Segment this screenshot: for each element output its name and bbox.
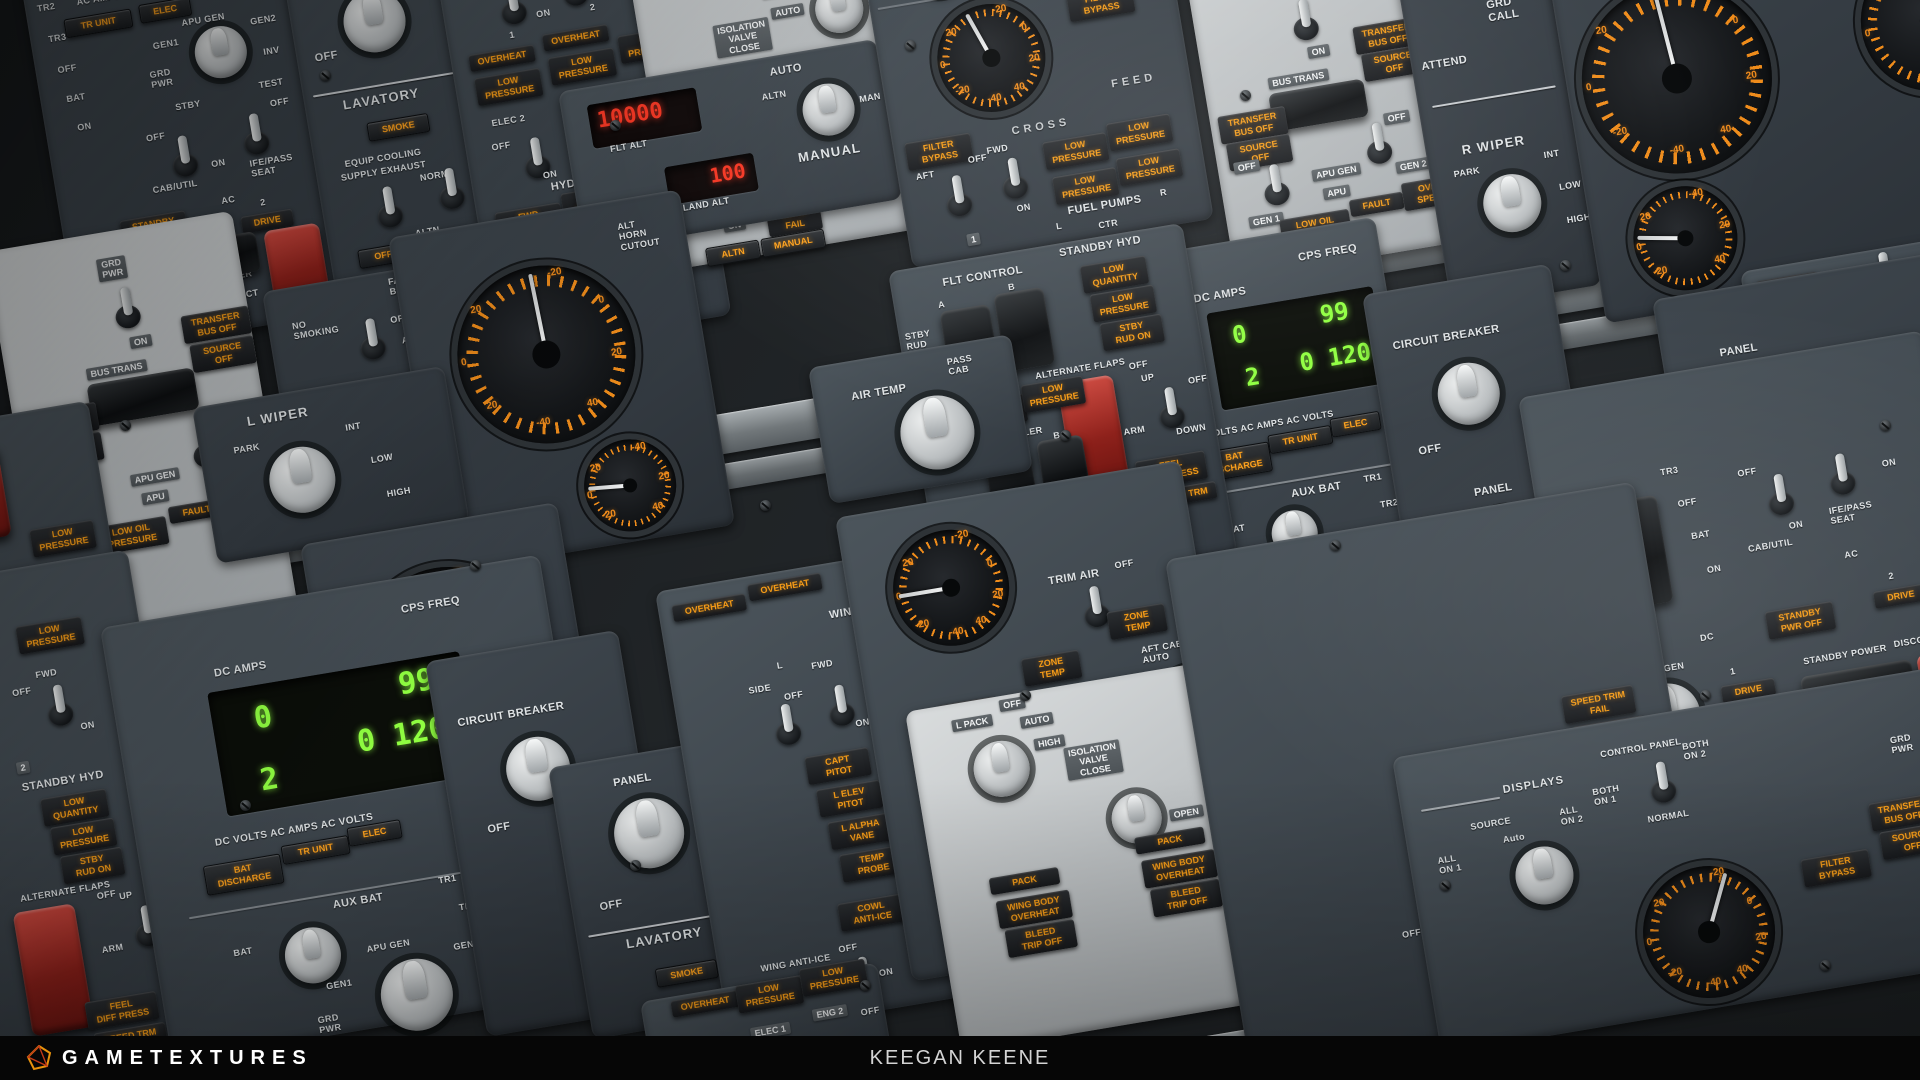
normal-label: NORMAL bbox=[1647, 808, 1690, 825]
ac-section-label: AC bbox=[1844, 548, 1859, 560]
fuel-low-pressure-annunciator: LOW PRESSURE bbox=[1042, 132, 1110, 170]
meter-selector-knob[interactable] bbox=[191, 22, 251, 82]
transfer-bus-off-annunciator: TRANSFER BUS OFF bbox=[1868, 793, 1920, 831]
fuel-low-pressure-annunciator: LOW PRESSURE bbox=[1116, 148, 1184, 186]
tr3-label: TR3 bbox=[1659, 465, 1679, 478]
screw-icon bbox=[1060, 430, 1071, 441]
panel-label: PANEL bbox=[1719, 341, 1759, 360]
auto-tag: AUTO bbox=[1019, 712, 1054, 730]
fuel-low-pressure-annunciator: LOW PRESSURE bbox=[29, 520, 97, 558]
all-on-2-label: ALL ON 2 bbox=[1558, 803, 1584, 827]
off-label: OFF bbox=[314, 49, 339, 65]
on-label: ON bbox=[878, 966, 894, 979]
supply-toggle[interactable] bbox=[371, 182, 408, 232]
l-wiper-title: L WIPER bbox=[246, 405, 310, 430]
grd-pwr-tag: GRD PWR bbox=[96, 255, 128, 282]
divider bbox=[1432, 85, 1556, 108]
fwd-label: FWD bbox=[986, 142, 1009, 156]
engine-1-label: 1 bbox=[509, 29, 516, 40]
no-smoking-label: NO SMOKING bbox=[291, 314, 340, 342]
bat-label: BAT bbox=[1690, 528, 1710, 541]
fuel-pump-toggle[interactable] bbox=[996, 154, 1033, 204]
on-label: ON bbox=[542, 168, 558, 181]
auto-value: Auto bbox=[1502, 831, 1525, 845]
on-label: ON bbox=[1881, 457, 1897, 470]
all-on-1-label: ALL ON 1 bbox=[1437, 852, 1463, 876]
aux-bat-knob[interactable] bbox=[281, 923, 345, 987]
cab-util-toggle[interactable] bbox=[1762, 470, 1799, 520]
pack-annunciator: PACK bbox=[989, 867, 1061, 895]
isolation-valve-tag: ISOLATION VALVE CLOSE bbox=[712, 17, 773, 59]
cab-util-label: CAB/UTIL bbox=[1747, 537, 1793, 555]
fwd-label: FWD bbox=[35, 667, 58, 681]
cps-freq-label: CPS FREQ bbox=[1297, 242, 1358, 264]
screw-icon bbox=[610, 120, 621, 131]
on-label: ON bbox=[1788, 519, 1804, 532]
off-label: OFF bbox=[1187, 373, 1208, 386]
right-tank-label: R bbox=[1159, 187, 1168, 198]
apu-tag: APU bbox=[141, 489, 170, 506]
fwd-label: FWD bbox=[811, 658, 834, 672]
screw-icon bbox=[320, 70, 331, 81]
tr-unit-button[interactable]: TR UNIT bbox=[63, 8, 133, 38]
low-label: LOW bbox=[1558, 179, 1582, 193]
elec-button[interactable]: ELEC bbox=[1329, 411, 1381, 438]
filter-bypass-annunciator: FILTER BYPASS bbox=[904, 133, 974, 171]
cab-util-label: CAB/UTIL bbox=[152, 178, 198, 196]
off-label: OFF bbox=[269, 96, 290, 109]
footer-bar: GAMETEXTURES KEEGAN KEENE bbox=[0, 1036, 1920, 1080]
off-label: OFF bbox=[487, 820, 512, 836]
anti-ice-toggle-1[interactable] bbox=[495, 0, 532, 29]
on-tag: ON bbox=[129, 334, 152, 350]
screw-icon bbox=[1020, 690, 1031, 701]
attend-label: ATTEND bbox=[1421, 54, 1469, 74]
tr3-label: TR3 bbox=[48, 31, 68, 44]
screw-icon bbox=[240, 800, 251, 811]
panel-light-knob[interactable] bbox=[609, 793, 690, 874]
man-label: MAN bbox=[859, 91, 882, 105]
screw-icon bbox=[860, 980, 871, 991]
tr1-label: TR1 bbox=[438, 873, 458, 886]
smoke-button[interactable]: SMOKE bbox=[655, 959, 719, 988]
window-heat-toggle[interactable] bbox=[823, 681, 860, 731]
gen1-label: GEN1 bbox=[325, 977, 352, 992]
on-label: ON bbox=[80, 719, 96, 732]
window-heat-toggle[interactable] bbox=[769, 700, 806, 750]
altn-button[interactable]: ALTN bbox=[705, 239, 761, 266]
left-tank-label: L bbox=[1055, 221, 1063, 232]
number-2-label: 2 bbox=[259, 197, 266, 208]
inv-label: INV bbox=[263, 44, 281, 57]
alternate-flaps-guarded-switch[interactable] bbox=[13, 903, 95, 1037]
smoke-button[interactable]: SMOKE bbox=[366, 113, 430, 142]
off-label: OFF bbox=[1737, 466, 1758, 479]
tank-2-tag: 2 bbox=[16, 761, 31, 775]
meter-selector-knob[interactable] bbox=[375, 953, 458, 1036]
fuel-pump-toggle[interactable] bbox=[940, 171, 977, 221]
off-label: OFF bbox=[860, 1005, 881, 1018]
anti-ice-toggle-2[interactable] bbox=[556, 0, 593, 11]
ac-section-label: AC bbox=[221, 194, 236, 206]
dc-section-label: DC bbox=[1699, 631, 1714, 643]
up-label: UP bbox=[1140, 372, 1155, 384]
tr2-label: TR2 bbox=[36, 1, 56, 14]
pressure-gauge-corner: 200 -200 20-40 bbox=[1850, 0, 1920, 101]
off-label: OFF bbox=[1418, 442, 1443, 458]
drive-annunciator: DRIVE bbox=[1873, 583, 1920, 608]
low-pressure-annunciator: LOW PRESSURE bbox=[15, 616, 85, 654]
display-dc-amps: 2 bbox=[1243, 362, 1262, 392]
l-label: L bbox=[776, 660, 784, 671]
circuit-breaker-title: CIRCUIT BREAKER bbox=[457, 700, 566, 730]
stby-label: STBY bbox=[175, 98, 202, 112]
alt-horn-cutout-label: ALT HORN CUTOUT bbox=[617, 216, 661, 253]
author-credit: KEEGAN KEENE bbox=[0, 1047, 1920, 1070]
int-label: INT bbox=[345, 420, 362, 433]
off-label: OFF bbox=[1677, 496, 1698, 509]
dc-meter-display: 0 99 2 0 120 bbox=[1206, 286, 1388, 410]
number-2-label: 2 bbox=[1888, 570, 1895, 581]
display-source-knob[interactable] bbox=[1511, 842, 1578, 909]
both-on-2-label: BOTH ON 2 bbox=[1681, 738, 1711, 763]
source-label: SOURCE bbox=[1470, 815, 1512, 832]
bat-label: BAT bbox=[233, 945, 253, 958]
screw-icon bbox=[1330, 540, 1341, 551]
number-1-label: 1 bbox=[1729, 666, 1736, 677]
display-dc-amps: 2 bbox=[258, 761, 282, 799]
off-tag: OFF bbox=[1233, 159, 1261, 175]
aft-label: AFT bbox=[915, 169, 935, 182]
pressure-gauge-bottom-right: 200 -20-40 -200 2040 bbox=[1633, 856, 1785, 1008]
screw-icon bbox=[1240, 90, 1251, 101]
screw-icon bbox=[1560, 260, 1571, 271]
fault-annunciator: FAULT bbox=[1349, 192, 1405, 217]
system-a-label: A bbox=[937, 299, 946, 310]
display-cps: 99 bbox=[1318, 297, 1351, 329]
auto-label: AUTO bbox=[769, 61, 803, 79]
feed-label: FEED bbox=[1110, 71, 1157, 91]
r-wiper-knob[interactable] bbox=[1479, 170, 1546, 237]
pressure-gauge-small: 200 -20-40 2040 bbox=[1626, 178, 1746, 298]
circuit-breaker-knob[interactable] bbox=[1433, 358, 1504, 429]
screw-icon bbox=[470, 560, 481, 571]
gen1-label: GEN1 bbox=[152, 37, 179, 52]
off-label: OFF bbox=[838, 942, 859, 955]
displays-title: DISPLAYS bbox=[1502, 774, 1565, 797]
gen2-label: GEN2 bbox=[249, 13, 276, 28]
display-dc-volts: 0 bbox=[251, 699, 275, 737]
eng2-tag: ENG 2 bbox=[812, 1004, 849, 1022]
press-mode-knob[interactable] bbox=[799, 80, 859, 140]
ife-pass-seat-label: IFE/PASS SEAT bbox=[1828, 499, 1874, 527]
overheat-annunciator: OVERHEAT bbox=[747, 572, 823, 601]
test-label: TEST bbox=[258, 76, 284, 90]
gen1-toggle[interactable] bbox=[1258, 160, 1295, 210]
air-temp-gauge: 200 -20-40 -200 2040 bbox=[884, 521, 1018, 655]
standby-power-title: STANDBY POWER bbox=[1803, 643, 1888, 667]
display-dc-volts: 0 bbox=[1230, 320, 1249, 350]
panel-label: PANEL bbox=[612, 771, 652, 790]
cps-freq-label: CPS FREQ bbox=[400, 594, 461, 616]
tr1-label: TR1 bbox=[1363, 471, 1383, 484]
elec2-label: ELEC 2 bbox=[491, 113, 526, 129]
disconnect-label: DISCONNECT bbox=[1893, 629, 1920, 650]
off-label: OFF bbox=[599, 898, 624, 914]
screw-icon bbox=[1820, 960, 1831, 971]
capt-pitot-annunciator: CAPT PITOT bbox=[804, 747, 872, 785]
overheat-annunciator: OVERHEAT bbox=[542, 24, 610, 51]
l-pack-tag: L PACK bbox=[951, 714, 993, 733]
high-tag: HIGH bbox=[1033, 734, 1065, 751]
standby-pwr-off-annunciator: STANDBY PWR OFF bbox=[1765, 601, 1837, 639]
circuit-breaker-title: CIRCUIT BREAKER bbox=[1392, 323, 1501, 353]
gen2-toggle[interactable] bbox=[1360, 119, 1397, 169]
on-tag: ON bbox=[1307, 44, 1330, 60]
lavatory-panel-knob[interactable] bbox=[339, 0, 410, 57]
r-wiper-title: R WIPER bbox=[1461, 133, 1527, 158]
zone-temp-annunciator: ZONE TEMP bbox=[1106, 603, 1168, 640]
apu-gen-tag: APU GEN bbox=[1311, 162, 1361, 182]
on-label: ON bbox=[210, 157, 226, 170]
int-label: INT bbox=[1543, 148, 1560, 161]
apu-gen-selector-title: APU GEN bbox=[366, 937, 411, 954]
on-label: ON bbox=[1706, 563, 1722, 576]
low-label: LOW bbox=[370, 452, 394, 466]
dc-amps-label: DC AMPS bbox=[1193, 285, 1247, 306]
grd-pwr-label: GRD PWR bbox=[1889, 732, 1914, 756]
off-label: OFF bbox=[1114, 557, 1135, 570]
auto-tag: AUTO bbox=[770, 3, 805, 21]
on-label: ON bbox=[1016, 202, 1032, 215]
off-label: OFF bbox=[967, 152, 988, 165]
off-label: OFF bbox=[1128, 358, 1149, 371]
ife-pass-seat-toggle[interactable] bbox=[237, 109, 274, 159]
exhaust-toggle[interactable] bbox=[433, 164, 470, 214]
cabin-alt-gauge: 200 20-40 -200 2040 bbox=[444, 252, 649, 457]
screw-icon bbox=[630, 860, 641, 871]
screw-icon bbox=[905, 40, 916, 51]
disconnect-guarded-switch[interactable] bbox=[0, 444, 12, 543]
on-label: ON bbox=[535, 7, 551, 20]
air-temp-knob[interactable] bbox=[895, 390, 980, 475]
grd-pwr-label: GRD PWR bbox=[149, 67, 174, 91]
altn-label: ALTN bbox=[761, 88, 787, 102]
ctr-label: CTR bbox=[1098, 217, 1119, 230]
on-label: ON bbox=[77, 121, 93, 134]
bat-label: BAT bbox=[66, 91, 86, 104]
fuel-pump-toggle[interactable] bbox=[41, 681, 78, 731]
off-label: OFF bbox=[1401, 927, 1422, 940]
fuel-low-pressure-annunciator: LOW PRESSURE bbox=[1106, 113, 1174, 151]
fuel-temp-gauge: 200 -20-40 -200 2040 bbox=[929, 0, 1053, 120]
screw-icon bbox=[1440, 880, 1451, 891]
screw-icon bbox=[120, 420, 131, 431]
high-label: HIGH bbox=[386, 485, 411, 499]
dc-amps-label: DC AMPS bbox=[213, 659, 267, 680]
cab-util-toggle[interactable] bbox=[166, 131, 203, 181]
pressure-gauge-large: 200 -20-40 -200 2040 bbox=[1568, 0, 1787, 188]
open-tag: OPEN bbox=[1169, 804, 1204, 822]
filter-bypass-annunciator: FILTER BYPASS bbox=[1066, 0, 1136, 22]
grd-pwr-label: GRD PWR bbox=[317, 1012, 342, 1036]
display-ac-volts: 0 120 bbox=[1297, 337, 1373, 377]
up-label: UP bbox=[118, 889, 133, 901]
off-label: OFF bbox=[145, 131, 166, 144]
ife-toggle[interactable] bbox=[1823, 449, 1860, 499]
control-panel-label: CONTROL PANEL bbox=[1599, 736, 1681, 760]
screw-icon bbox=[1700, 690, 1711, 701]
engine-2-label: 2 bbox=[589, 2, 596, 13]
control-panel-toggle[interactable] bbox=[1644, 757, 1681, 807]
diff-press-gauge: 200 -20-40 2040 bbox=[577, 432, 683, 538]
cross-label: CROSS bbox=[1011, 116, 1071, 138]
off-label: OFF bbox=[491, 140, 512, 153]
park-label: PARK bbox=[233, 441, 261, 456]
manual-title: MANUAL bbox=[797, 141, 862, 166]
zone-temp-annunciator: ZONE TEMP bbox=[1021, 650, 1083, 687]
cowl-anti-ice-annunciator: COWL ANTI-ICE bbox=[837, 893, 907, 931]
pass-cab-label: PASS CAB bbox=[946, 353, 975, 378]
air-temp-title: AIR TEMP bbox=[850, 382, 907, 404]
isolation-valve-tag: ISOLATION VALVE CLOSE bbox=[1063, 739, 1124, 781]
grd-call-label: GRD CALL bbox=[1485, 0, 1520, 25]
arm-label: ARM bbox=[1123, 424, 1146, 438]
aux-bat-label: AUX BAT bbox=[332, 891, 384, 912]
tank-1-tag: 1 bbox=[966, 232, 981, 246]
low-pressure-annunciator: LOW PRESSURE bbox=[548, 47, 618, 85]
r-pack-knob[interactable] bbox=[812, 0, 867, 37]
screw-icon bbox=[1880, 420, 1891, 431]
low-pressure-annunciator: LOW PRESSURE bbox=[474, 68, 544, 106]
aux-bat-label: AUX BAT bbox=[1290, 480, 1342, 501]
divider bbox=[1421, 797, 1500, 812]
l-elev-pitot-annunciator: L ELEV PITOT bbox=[816, 780, 884, 818]
off-label: OFF bbox=[96, 888, 117, 901]
screw-icon bbox=[760, 500, 771, 511]
both-on-1-label: BOTH ON 1 bbox=[1592, 783, 1622, 808]
overheat-annunciator: OVERHEAT bbox=[468, 44, 536, 71]
l-pack-knob[interactable] bbox=[969, 737, 1033, 801]
filter-bypass-annunciator: FILTER BYPASS bbox=[1800, 849, 1872, 887]
grd-pwr-toggle[interactable] bbox=[109, 283, 146, 333]
off-label: OFF bbox=[11, 685, 32, 698]
panel-label: PANEL bbox=[1473, 481, 1513, 500]
l-wiper-knob[interactable] bbox=[264, 442, 340, 518]
apu-gen-tag: APU GEN bbox=[130, 467, 180, 487]
overhead-panel-scene: 0 120 AC AMPS AC VOLTS TR UNIT ELEC TR1 … bbox=[0, 0, 1920, 1080]
side-label: SIDE bbox=[748, 682, 772, 696]
off-label: OFF bbox=[57, 62, 78, 75]
arm-label: ARM bbox=[101, 942, 124, 956]
grd-pwr-toggle[interactable] bbox=[1287, 0, 1324, 45]
apu-tag: APU bbox=[1322, 184, 1351, 201]
overheat-annunciator: OVERHEAT bbox=[671, 593, 747, 622]
no-smoking-toggle[interactable] bbox=[354, 314, 391, 364]
park-label: PARK bbox=[1453, 165, 1481, 180]
